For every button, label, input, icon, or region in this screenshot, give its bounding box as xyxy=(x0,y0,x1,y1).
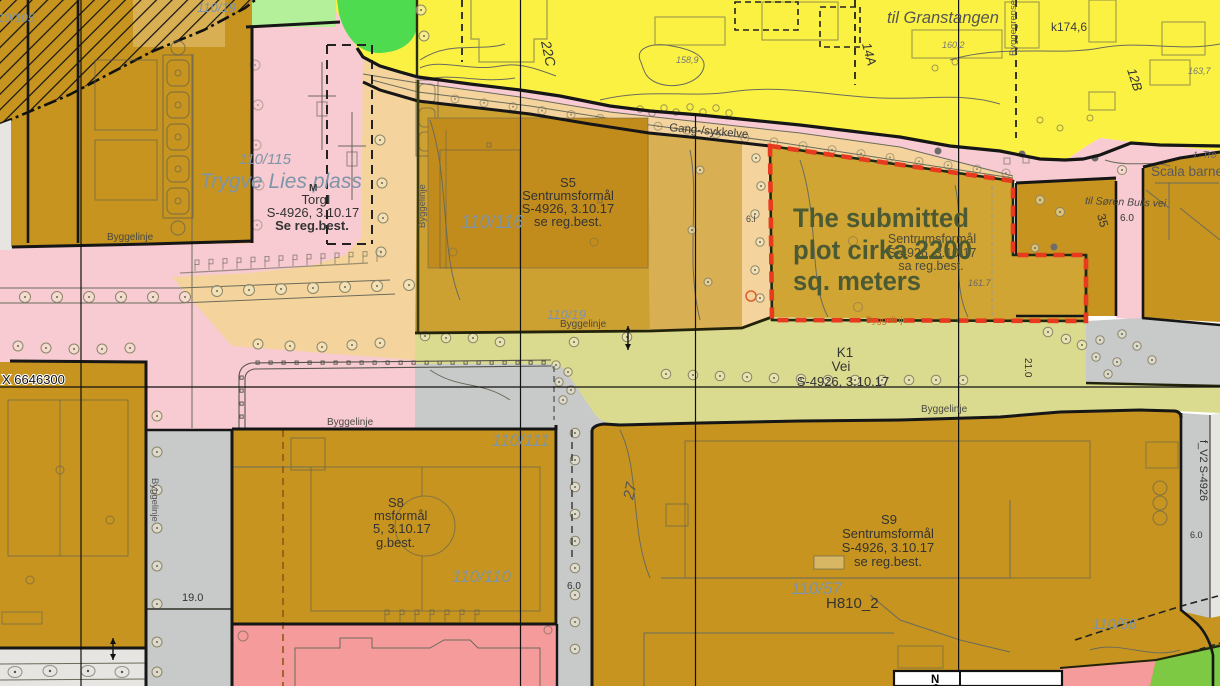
svg-text:Byggelinje: Byggelinje xyxy=(107,232,154,243)
svg-text:S-4926, 3.10.17: S-4926, 3.10.17 xyxy=(842,540,935,555)
svg-text:K1: K1 xyxy=(837,345,854,360)
svg-text:6.l: 6.l xyxy=(746,214,756,224)
svg-text:110/19: 110/19 xyxy=(197,0,236,15)
svg-text:k174,6: k174,6 xyxy=(1051,20,1087,34)
svg-text:H810_2: H810_2 xyxy=(826,595,879,612)
svg-text:21.0: 21.0 xyxy=(1022,358,1033,378)
svg-text:110/115: 110/115 xyxy=(239,151,292,168)
svg-text:Byggelinje: Byggelinje xyxy=(866,315,908,325)
svg-text:110/116: 110/116 xyxy=(461,212,524,232)
svg-text:110/110: 110/110 xyxy=(452,567,511,586)
svg-text:6.0: 6.0 xyxy=(1190,530,1203,540)
svg-text:163,7: 163,7 xyxy=(1188,66,1212,76)
svg-text:til Granstangen: til Granstangen xyxy=(887,9,999,27)
svg-text:Byggelinje: Byggelinje xyxy=(149,478,160,522)
svg-text:sq. meters: sq. meters xyxy=(793,266,921,296)
svg-text:110/56: 110/56 xyxy=(1092,616,1137,633)
svg-text:Scala barne: Scala barne xyxy=(1151,164,1220,179)
svg-text:X 6646300: X 6646300 xyxy=(2,372,65,387)
svg-text:se reg.best.: se reg.best. xyxy=(534,214,602,229)
svg-text:t. Tro: t. Tro xyxy=(1194,150,1217,161)
svg-text:Byggegrense: Byggegrense xyxy=(1008,0,1019,56)
svg-text:110/111: 110/111 xyxy=(492,431,550,450)
svg-text:Byggelinje: Byggelinje xyxy=(417,184,428,228)
svg-text:6.0: 6.0 xyxy=(567,581,581,592)
svg-text:160,2: 160,2 xyxy=(942,40,965,50)
svg-text:Se reg.best.: Se reg.best. xyxy=(275,218,349,233)
svg-text:Vei: Vei xyxy=(832,359,851,374)
svg-text:f_V2 S-4926: f_V2 S-4926 xyxy=(1197,440,1209,501)
svg-text:S-4926, 3.10.17: S-4926, 3.10.17 xyxy=(797,374,890,389)
svg-text:Byggelinje: Byggelinje xyxy=(327,417,374,428)
svg-text:Sentrumsformål: Sentrumsformål xyxy=(842,526,934,541)
svg-text:Byggelinje: Byggelinje xyxy=(921,404,968,415)
svg-text:110/105: 110/105 xyxy=(0,11,35,25)
svg-text:g.best.: g.best. xyxy=(376,535,415,550)
svg-text:161.7: 161.7 xyxy=(968,278,992,288)
svg-text:6.0: 6.0 xyxy=(1120,213,1134,224)
svg-text:The submitted: The submitted xyxy=(793,203,969,233)
svg-text:5, 3.10.17: 5, 3.10.17 xyxy=(373,521,431,536)
svg-text:N: N xyxy=(931,674,939,686)
svg-text:158,9: 158,9 xyxy=(676,55,699,65)
svg-text:se reg.best.: se reg.best. xyxy=(854,554,922,569)
svg-text:S9: S9 xyxy=(881,512,897,527)
svg-text:plot cirka 2200: plot cirka 2200 xyxy=(793,235,972,265)
svg-text:Trygve Lies plass: Trygve Lies plass xyxy=(200,170,362,193)
svg-text:19.0: 19.0 xyxy=(182,592,203,604)
svg-text:Byggelinje: Byggelinje xyxy=(560,319,607,330)
